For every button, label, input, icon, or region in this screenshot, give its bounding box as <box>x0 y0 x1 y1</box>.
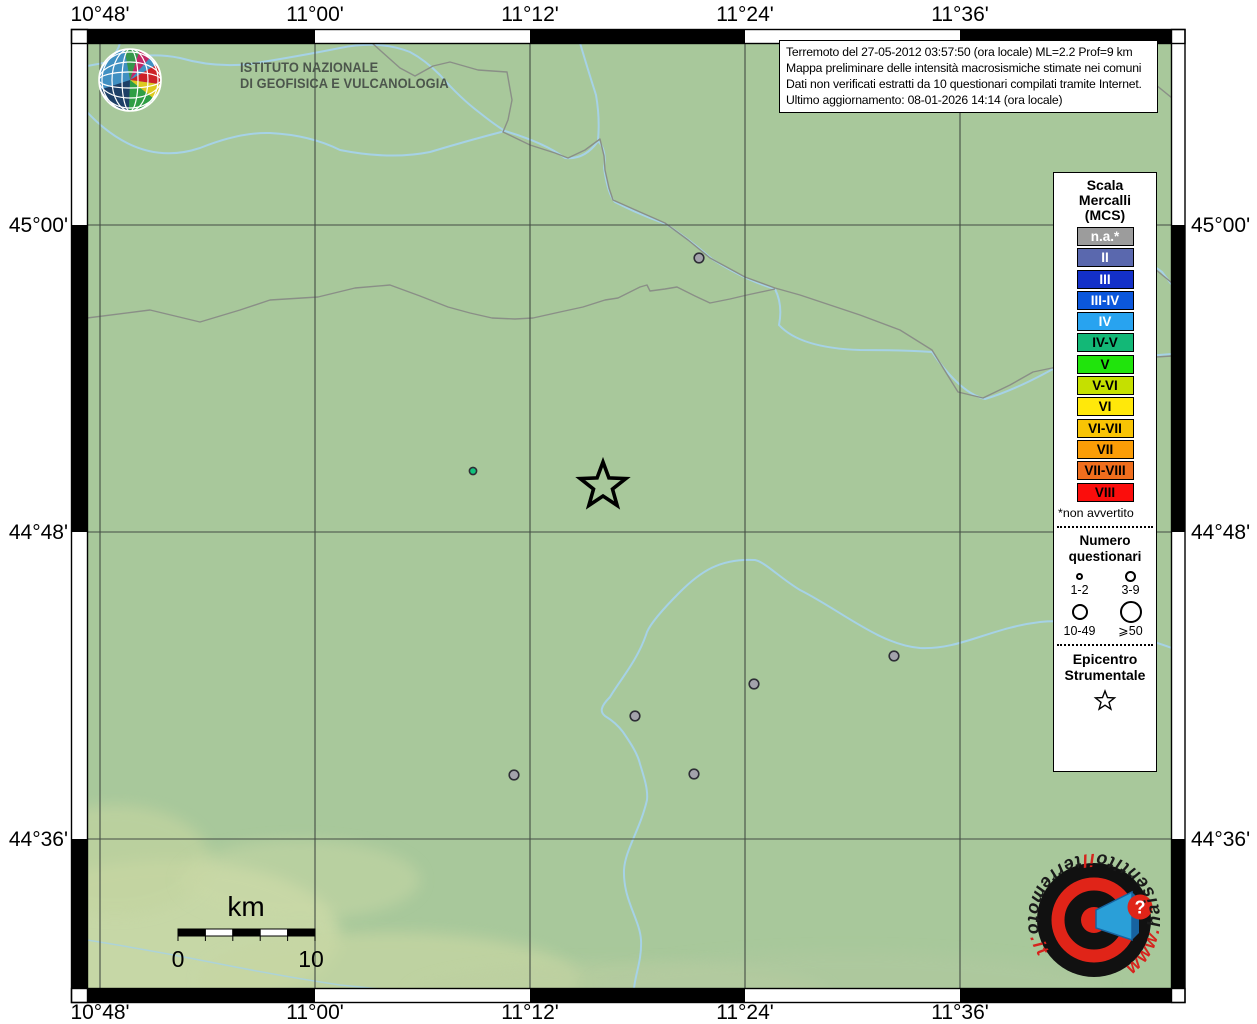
axis-label-lat-right: 44°48' <box>1191 521 1250 545</box>
questionnaire-title-line2: questionari <box>1054 549 1156 565</box>
questionnaire-circle-wrap <box>1120 600 1142 624</box>
questionnaire-circle-wrap <box>1076 570 1083 583</box>
axis-label-lon-top: 11°24' <box>700 3 790 27</box>
event-info-box: Terremoto del 27-05-2012 03:57:50 (ora l… <box>779 40 1158 113</box>
questionnaire-circle-wrap <box>1072 600 1088 624</box>
questionnaire-size-item: 1-2 <box>1054 570 1105 597</box>
intensity-point-n.a. <box>749 679 759 689</box>
legend-chip-VI-VII: VI-VII <box>1077 419 1134 438</box>
legend-chip-III-IV: III-IV <box>1077 291 1134 310</box>
legend-chip-IV-V: IV-V <box>1077 333 1134 352</box>
questionnaire-circle-wrap <box>1125 570 1136 583</box>
questionnaire-size-label: 1-2 <box>1070 583 1088 597</box>
questionnaire-size-item: ⩾50 <box>1105 600 1156 638</box>
axis-label-lon-bottom: 11°36' <box>915 1001 1005 1024</box>
intensity-point-IV-V <box>469 467 476 474</box>
questionnaire-circle-icon <box>1072 604 1088 620</box>
macroseismic-map-page: km 0 10 <box>0 0 1257 1024</box>
info-line-map-desc: Mappa preliminare delle intensità macros… <box>786 60 1152 76</box>
legend-chip-VI: VI <box>1077 397 1134 416</box>
scale-bar-end: 10 <box>298 946 324 972</box>
questionnaire-size-item: 3-9 <box>1105 570 1156 597</box>
info-line-updated: Ultimo aggiornamento: 08-01-2026 14:14 (… <box>786 92 1152 108</box>
axis-label-lon-top: 11°12' <box>485 3 575 27</box>
legend-separator-1 <box>1057 526 1153 528</box>
axis-label-lat-right: 44°36' <box>1191 828 1250 852</box>
questionnaire-size-item: 10-49 <box>1054 600 1105 638</box>
intensity-point-n.a. <box>694 253 704 263</box>
intensity-point-n.a. <box>889 651 899 661</box>
questionnaire-title-line1: Numero <box>1054 533 1156 549</box>
legend-chip-II: II <box>1077 248 1134 267</box>
scale-bar-start: 0 <box>172 946 185 972</box>
questionnaire-circle-icon <box>1076 573 1083 580</box>
legend-title-line2: Mercalli <box>1054 193 1156 208</box>
legend-chip-V: V <box>1077 355 1134 374</box>
axis-label-lon-bottom: 11°00' <box>270 1001 360 1024</box>
legend-chip-VIII: VIII <box>1077 483 1134 502</box>
info-line-event: Terremoto del 27-05-2012 03:57:50 (ora l… <box>786 44 1152 60</box>
ingv-logo-text: ISTITUTO NAZIONALE DI GEOFISICA E VULCAN… <box>240 60 449 91</box>
axis-label-lat-left: 44°48' <box>4 521 68 545</box>
epicenter-title-line1: Epicentro <box>1054 651 1156 668</box>
axis-label-lat-right: 45°00' <box>1191 214 1250 238</box>
axis-label-lon-bottom: 11°12' <box>485 1001 575 1024</box>
questionnaire-circle-icon <box>1125 571 1136 582</box>
legend-chip-VII-VIII: VII-VIII <box>1077 461 1134 480</box>
legend-chip-n.a.*: n.a.* <box>1077 227 1134 246</box>
legend: Scala Mercalli (MCS) n.a.*IIIIIIII-IVIVI… <box>1053 172 1157 772</box>
legend-chip-III: III <box>1077 270 1134 289</box>
axis-label-lon-bottom: 10°48' <box>55 1001 145 1024</box>
axis-label-lon-top: 10°48' <box>55 3 145 27</box>
axis-label-lon-top: 11°36' <box>915 3 1005 27</box>
ingv-line2: DI GEOFISICA E VULCANOLOGIA <box>240 76 449 92</box>
info-line-data-source: Dati non verificati estratti da 10 quest… <box>786 76 1152 92</box>
legend-separator-2 <box>1057 644 1153 646</box>
axis-label-lon-top: 11°00' <box>270 3 360 27</box>
legend-chip-IV: IV <box>1077 312 1134 331</box>
intensity-point-n.a. <box>630 711 640 721</box>
legend-title-line1: Scala <box>1054 178 1156 193</box>
questionnaire-size-label: 3-9 <box>1121 583 1139 597</box>
questionnaire-circle-icon <box>1120 601 1142 623</box>
intensity-point-n.a. <box>509 770 519 780</box>
intensity-point-n.a. <box>689 769 699 779</box>
questionnaire-size-key: 1-23-910-49⩾50 <box>1054 570 1156 638</box>
axis-label-lon-bottom: 11°24' <box>700 1001 790 1024</box>
axis-label-lat-left: 44°36' <box>4 828 68 852</box>
questionnaire-size-label: ⩾50 <box>1118 624 1142 638</box>
epicenter-star-icon <box>1092 688 1118 714</box>
legend-intensity-scale: n.a.*IIIIIIII-IVIVIV-VVV-VIVIVI-VIIVIIVI… <box>1054 227 1156 502</box>
axis-label-lat-left: 45°00' <box>4 214 68 238</box>
legend-title-line3: (MCS) <box>1054 208 1156 223</box>
epicenter-title-line2: Strumentale <box>1054 667 1156 684</box>
legend-footnote: *non avvertito <box>1054 506 1156 520</box>
scale-bar-unit: km <box>227 891 264 922</box>
ingv-line1: ISTITUTO NAZIONALE <box>240 60 449 76</box>
legend-chip-V-VI: V-VI <box>1077 376 1134 395</box>
questionnaire-size-label: 10-49 <box>1064 624 1096 638</box>
ingv-logo-globe <box>99 49 161 111</box>
legend-chip-VII: VII <box>1077 440 1134 459</box>
